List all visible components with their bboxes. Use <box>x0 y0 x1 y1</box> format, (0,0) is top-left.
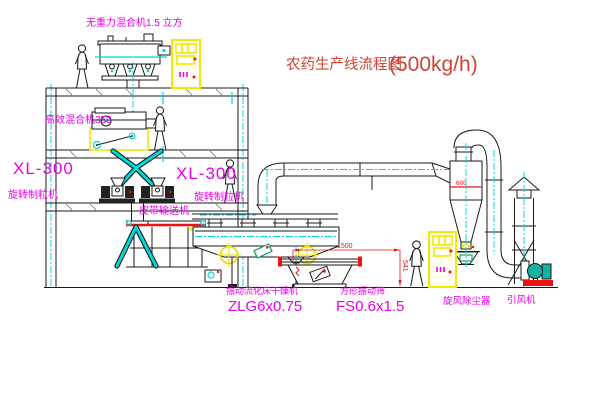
diagram-title: 农药生产线流程图 <box>286 56 402 73</box>
granulator-unit-left <box>99 178 135 203</box>
label-sieve-name: 方形振动筛 <box>340 285 385 296</box>
support-a-frame-edge <box>117 227 156 266</box>
label-xl300-left: XL-300 <box>13 159 74 178</box>
diagram-title-capacity: (500kg/h) <box>389 53 478 76</box>
worker-figure <box>154 107 167 150</box>
label-belt-conveyor: 皮带输送机 <box>139 204 189 217</box>
label-dryer-model: ZLG6x0.75 <box>228 298 302 315</box>
diagram-canvas: 1500 541 600 <box>0 0 600 403</box>
dim-541: 541 <box>401 260 408 272</box>
label-xl300-mid: XL-300 <box>176 164 237 183</box>
label-gravity-mixer: 无重力混合机1.5 立方 <box>86 16 183 29</box>
dim-1500: 1500 <box>337 243 353 250</box>
indicator-dot <box>194 58 197 61</box>
control-cabinet-2 <box>429 232 456 287</box>
worker-figure <box>410 241 424 286</box>
label-granulator-left: 旋转制粒机 <box>8 188 58 201</box>
induced-draft-fan <box>521 261 553 286</box>
label-sieve-model: FS0.6x1.5 <box>336 298 404 315</box>
pesticide-line-flow-diagram: 1500 541 600 <box>0 0 600 403</box>
label-cyclone: 旋风除尘器 <box>443 295 491 307</box>
fan-base <box>523 280 553 286</box>
gravity-free-mixer <box>95 34 170 112</box>
exhaust-duct <box>258 163 452 213</box>
label-high-mixer: 高效混合机350 <box>45 113 112 126</box>
label-fan: 引风机 <box>507 294 536 306</box>
label-dryer-name: 振动流化床干燥机 <box>226 285 298 296</box>
label-granulator-mid: 旋转制粒机 <box>194 190 244 203</box>
roof-slab <box>46 88 248 104</box>
granulator-unit-right <box>139 178 175 203</box>
port-dot <box>162 49 165 52</box>
worker-figure <box>76 45 89 88</box>
mixer-hoppers <box>105 64 155 76</box>
feed-funnel <box>257 205 277 214</box>
control-cabinet-1 <box>172 40 200 88</box>
